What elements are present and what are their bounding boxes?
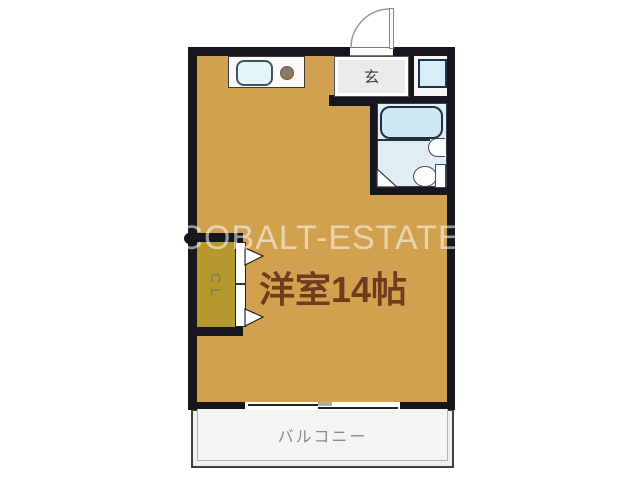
entrance-area: 玄 xyxy=(334,56,409,97)
sliding-window-pane-left xyxy=(248,404,323,406)
sliding-window-pane-right xyxy=(318,407,398,409)
entrance-door-swing-icon xyxy=(346,5,394,53)
kitchen-sink-icon xyxy=(236,60,273,86)
wall-closet-bottom xyxy=(188,327,243,336)
entrance-label: 玄 xyxy=(364,66,379,87)
main-room-label: 洋室14帖 xyxy=(197,261,447,313)
watermark-text: COBALT-ESTATE xyxy=(0,219,640,258)
bathroom-door-icon xyxy=(375,167,399,189)
toilet-icon xyxy=(413,166,437,187)
balcony-label: バルコニー xyxy=(278,423,368,447)
stove-burner-icon xyxy=(280,66,294,80)
bathtub-icon xyxy=(380,106,443,139)
balcony-inner: バルコニー xyxy=(197,409,448,461)
floorplan-canvas: 玄 C L バルコニー 洋室14帖 COBALT-ESTATE xyxy=(0,0,640,480)
wash-basin-icon xyxy=(428,138,445,157)
wall-top-left xyxy=(188,47,350,56)
wall-top-right xyxy=(393,47,455,56)
washing-machine-icon xyxy=(418,59,447,88)
sliding-window-overlap xyxy=(318,402,332,406)
toilet-tank xyxy=(435,164,446,188)
bathroom-divider xyxy=(377,139,430,141)
